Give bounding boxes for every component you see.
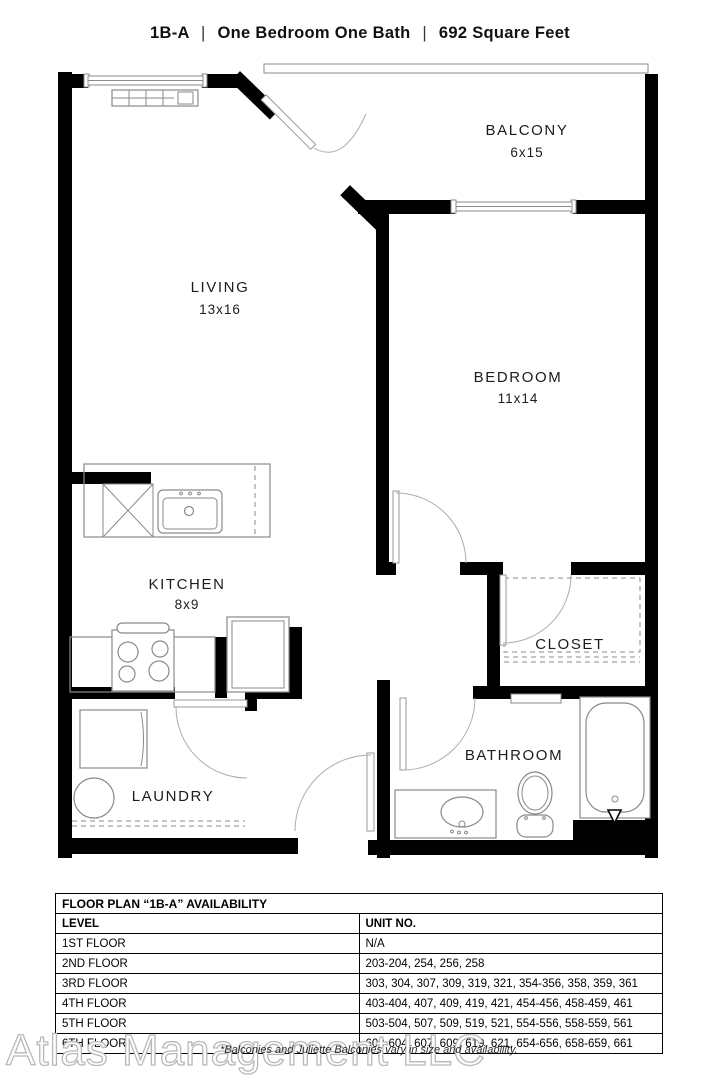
closet-label: CLOSET xyxy=(535,636,605,653)
closet-door xyxy=(500,575,571,645)
level-cell: 2ND FLOOR xyxy=(56,954,360,974)
availability-table-header-row: LEVEL UNIT NO. xyxy=(56,914,663,934)
living-label: LIVING xyxy=(191,279,250,296)
bathroom-label: BATHROOM xyxy=(465,747,563,764)
water-heater xyxy=(74,778,114,818)
balcony-label: BALCONY xyxy=(486,122,569,139)
living-window xyxy=(84,74,207,87)
level-cell: 1ST FLOOR xyxy=(56,934,360,954)
balcony-railing xyxy=(264,64,648,73)
bedroom-door xyxy=(393,491,466,563)
units-cell: 303, 304, 307, 309, 319, 321, 354-356, 3… xyxy=(359,974,663,994)
column-header-unit-no: UNIT NO. xyxy=(359,914,663,934)
kitchen-dims: 8x9 xyxy=(175,597,200,612)
balcony-dims: 6x15 xyxy=(510,145,543,160)
vanity-sink xyxy=(395,790,496,838)
kitchen-label: KITCHEN xyxy=(148,576,225,593)
entry-door xyxy=(295,753,374,831)
units-cell: 203-204, 254, 256, 258 xyxy=(359,954,663,974)
floor-plan-drawing: BALCONY 6x15 LIVING 13x16 BEDROOM 11x14 … xyxy=(0,0,720,880)
baseboard-heater xyxy=(112,90,198,106)
bathroom-door xyxy=(400,698,475,770)
availability-table-title-row: FLOOR PLAN “1B-A” AVAILABILITY xyxy=(56,894,663,914)
disclaimer-note: *Balconies and Juliette Balconies vary i… xyxy=(220,1044,518,1056)
table-row: 1ST FLOOR N/A xyxy=(56,934,663,954)
laundry-door xyxy=(174,700,247,778)
table-row: 4TH FLOOR 403-404, 407, 409, 419, 421, 4… xyxy=(56,994,663,1014)
kitchen-sink xyxy=(158,490,222,533)
table-row: 2ND FLOOR 203-204, 254, 256, 258 xyxy=(56,954,663,974)
level-cell: 3RD FLOOR xyxy=(56,974,360,994)
bedroom-dims: 11x14 xyxy=(498,391,539,406)
table-row: 3RD FLOOR 303, 304, 307, 309, 319, 321, … xyxy=(56,974,663,994)
bedroom-window xyxy=(451,200,576,213)
balcony-door xyxy=(261,95,366,152)
laundry-shelf xyxy=(72,821,245,826)
units-cell: 403-404, 407, 409, 419, 421, 454-456, 45… xyxy=(359,994,663,1014)
bathroom-niche xyxy=(511,694,561,703)
bedroom-label: BEDROOM xyxy=(474,369,563,386)
toilet xyxy=(517,772,553,837)
column-header-level: LEVEL xyxy=(56,914,360,934)
laundry-label: LAUNDRY xyxy=(132,788,215,805)
units-cell: N/A xyxy=(359,934,663,954)
availability-table-title: FLOOR PLAN “1B-A” AVAILABILITY xyxy=(56,894,663,914)
bathtub xyxy=(580,697,650,823)
stove xyxy=(112,623,174,691)
living-dims: 13x16 xyxy=(199,302,241,317)
refrigerator xyxy=(227,617,289,692)
washer-dryer xyxy=(80,710,147,768)
level-cell: 4TH FLOOR xyxy=(56,994,360,1014)
